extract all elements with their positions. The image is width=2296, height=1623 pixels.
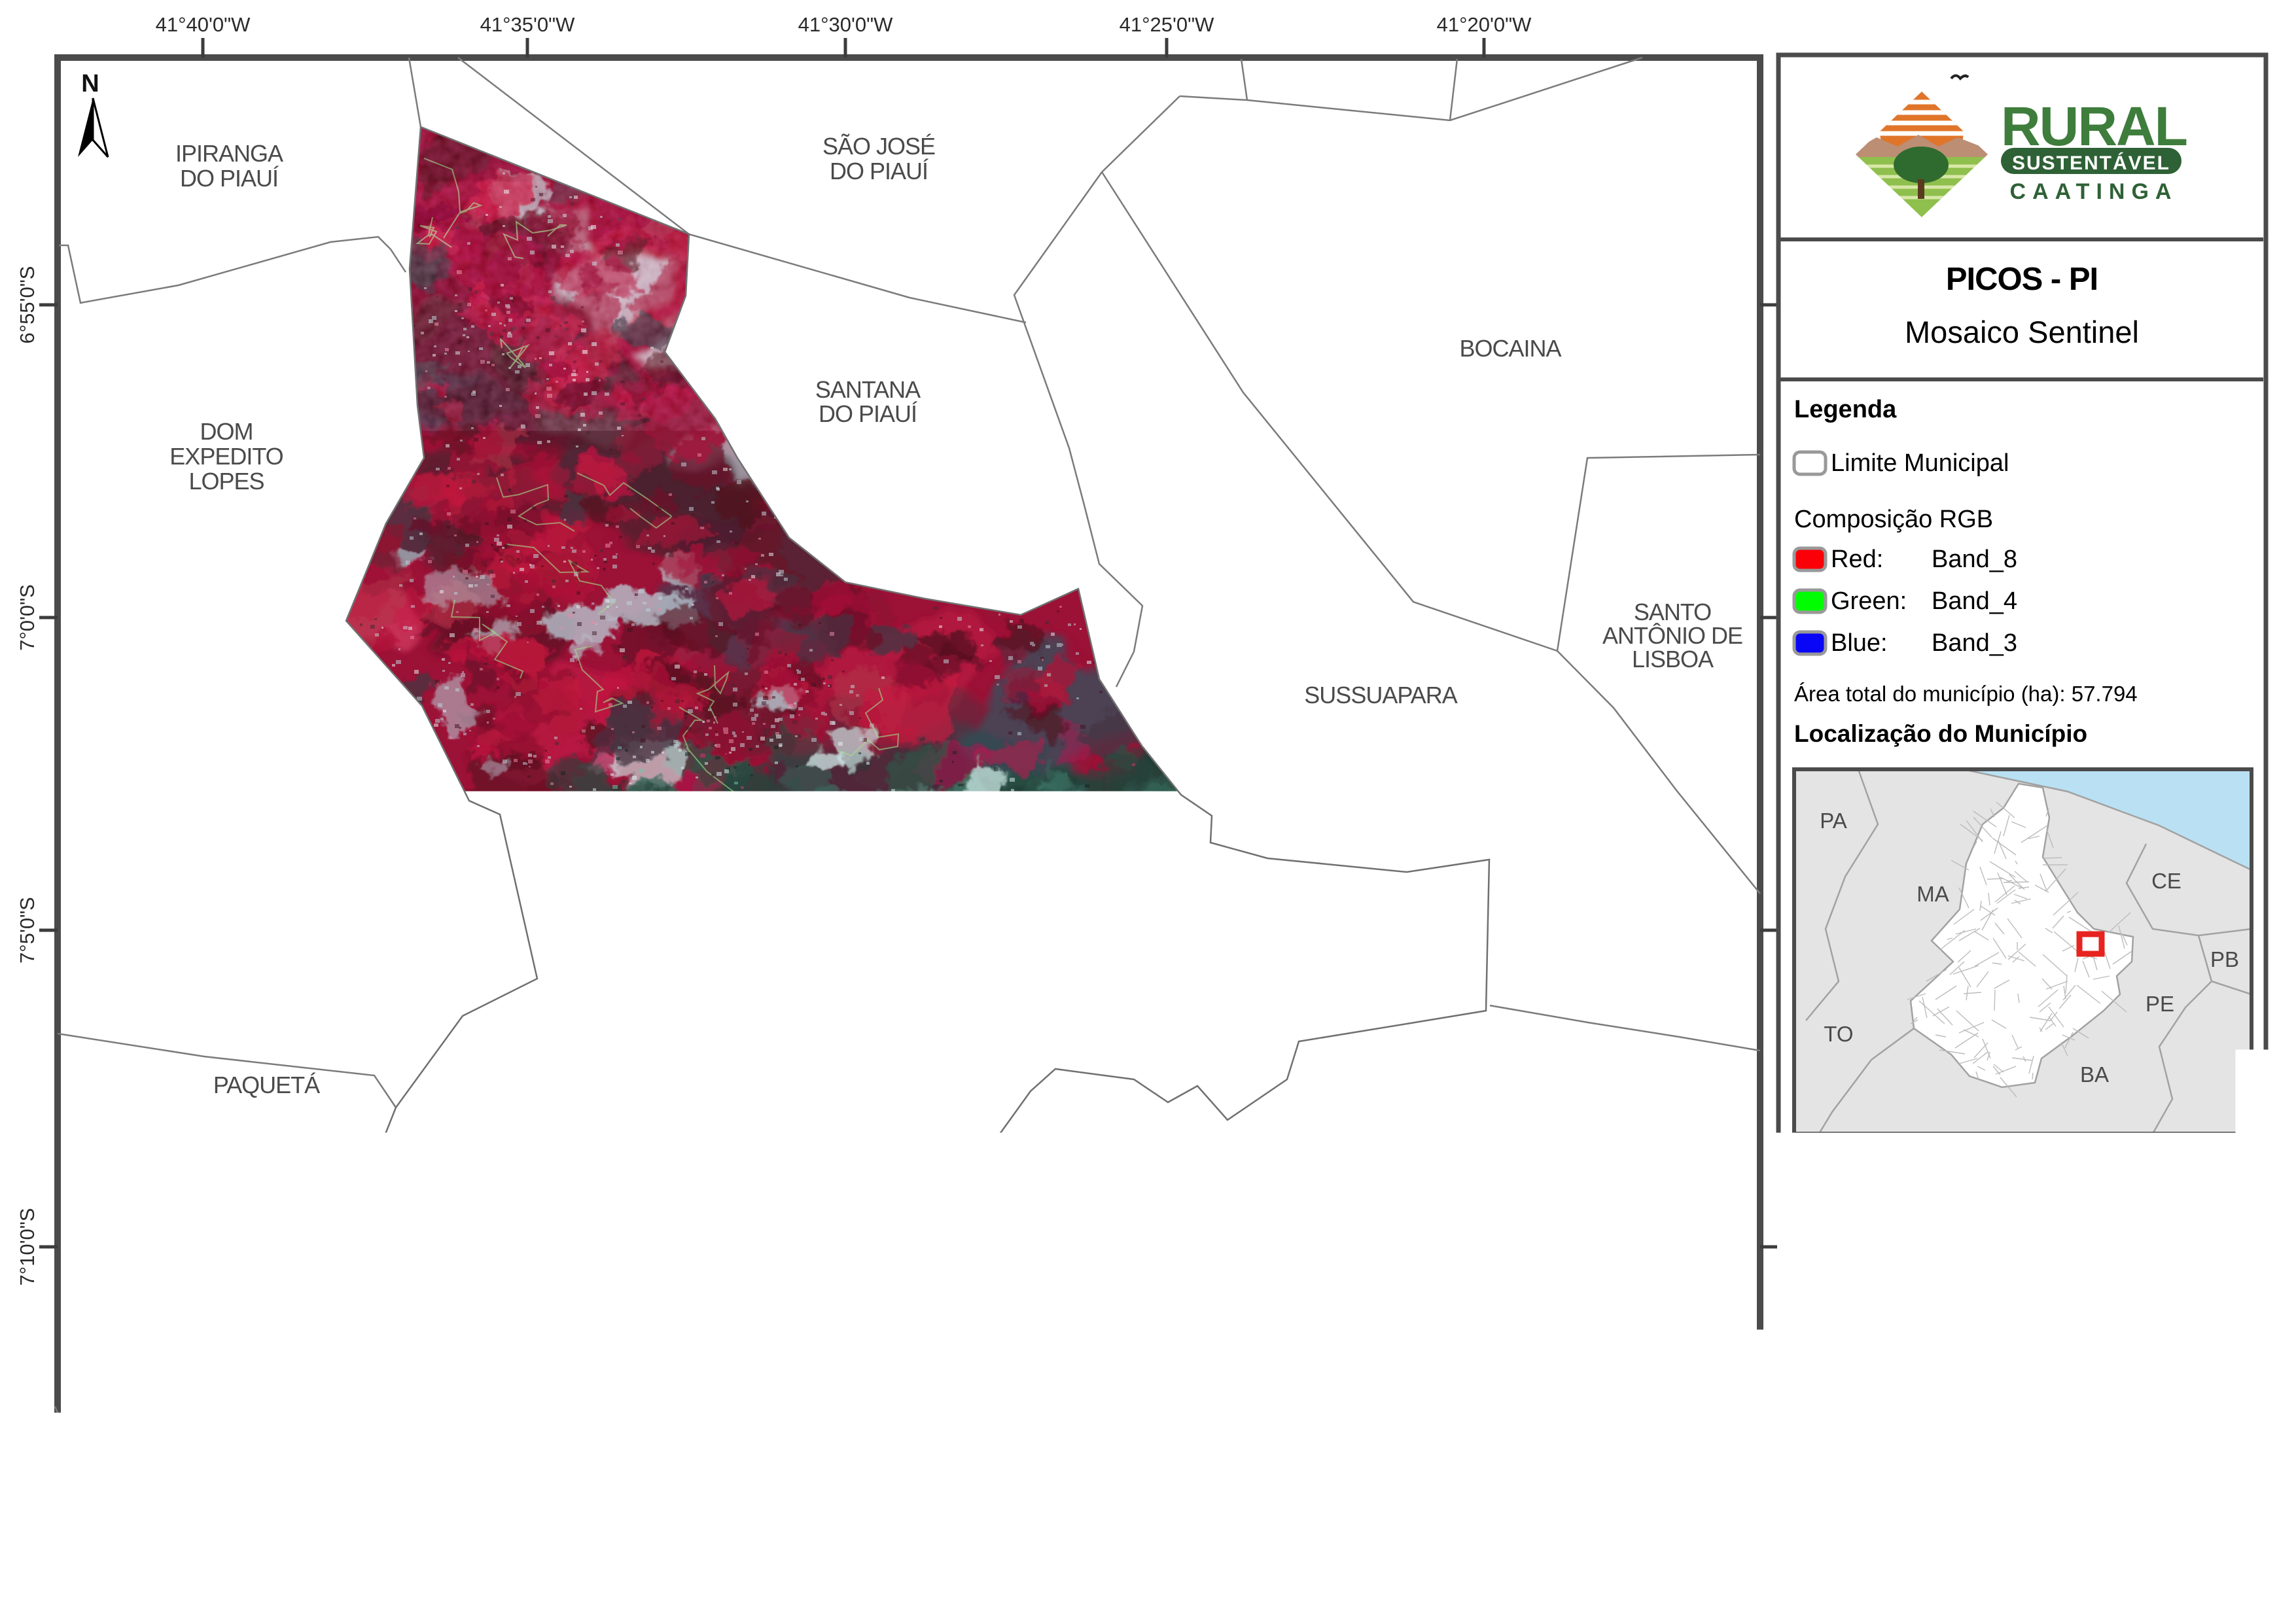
- svg-text:TO: TO: [1824, 1022, 1853, 1046]
- svg-text:BRITAIN & NORTHERN IRELAND: BRITAIN & NORTHERN IRELAND: [2006, 1452, 2098, 1459]
- svg-text:Sistema de Coordenadas Geográf: Sistema de Coordenadas Geográficas: [1794, 1209, 2216, 1236]
- svg-text:41°40'0"W: 41°40'0"W: [156, 13, 251, 36]
- svg-text:PB: PB: [2210, 947, 2239, 971]
- svg-text:LOPES: LOPES: [188, 468, 264, 495]
- svg-text:41°30'0"W: 41°30'0"W: [798, 13, 894, 36]
- svg-text:EXPEDITO: EXPEDITO: [169, 443, 283, 470]
- svg-text:41°25'0"W: 41°25'0"W: [1120, 1586, 1215, 1609]
- svg-text:AROEIRAS: AROEIRAS: [711, 1414, 827, 1440]
- svg-text:Imagens Sentinel 2 - Ano base: Imagens Sentinel 2 - Ano base 2019: [1794, 1179, 2195, 1207]
- svg-text:SUSSUAPARA: SUSSUAPARA: [1304, 682, 1457, 708]
- svg-text:CE: CE: [2151, 869, 2181, 893]
- svg-text:41°25'0"W: 41°25'0"W: [1120, 13, 1215, 36]
- svg-text:IPIRANGA: IPIRANGA: [175, 140, 283, 167]
- svg-text:SÃO JOSÉ: SÃO JOSÉ: [822, 133, 935, 160]
- svg-text:LISBOA: LISBOA: [1632, 646, 1714, 672]
- svg-text:Band_3: Band_3: [1932, 629, 2017, 657]
- svg-text:PAQUETÁ: PAQUETÁ: [213, 1072, 320, 1098]
- svg-text:41°30'0"W: 41°30'0"W: [798, 1586, 894, 1609]
- svg-text:ANTÔNIO DE: ANTÔNIO DE: [1602, 622, 1742, 649]
- svg-text:PA: PA: [1820, 809, 1847, 833]
- svg-text:BA: BA: [2080, 1062, 2109, 1087]
- svg-text:Band_4: Band_4: [1932, 587, 2017, 615]
- svg-text:DO ITAIM: DO ITAIM: [720, 1439, 817, 1465]
- svg-text:Band_8: Band_8: [1932, 546, 2017, 573]
- svg-text:Datum SIRGAS 2000: Datum SIRGAS 2000: [1794, 1238, 2030, 1265]
- svg-text:PICOS - PI: PICOS - PI: [1946, 262, 2098, 297]
- svg-text:BRASIL: BRASIL: [2075, 1506, 2187, 1540]
- svg-text:fbds: fbds: [1997, 1323, 2099, 1378]
- svg-text:Red:: Red:: [1831, 546, 1883, 573]
- svg-text:Limite Municipal: Limite Municipal: [1831, 449, 2009, 477]
- svg-text:DO PIAUÍ: DO PIAUÍ: [819, 400, 917, 427]
- svg-text:41°35'0"W: 41°35'0"W: [480, 1586, 576, 1609]
- svg-text:Legenda: Legenda: [1794, 396, 1897, 423]
- svg-text:12 km: 12 km: [482, 1495, 553, 1524]
- svg-text:for: for: [2086, 1427, 2109, 1449]
- svg-text:RURAL: RURAL: [2001, 96, 2187, 157]
- svg-text:Banco Interamericano: Banco Interamericano: [1874, 1453, 1996, 1467]
- svg-text:Composição RGB: Composição RGB: [1794, 506, 1993, 533]
- svg-text:7°0'0"S: 7°0'0"S: [16, 584, 39, 651]
- svg-text:Mosaico Sentinel: Mosaico Sentinel: [1905, 315, 2139, 349]
- svg-text:41°20'0"W: 41°20'0"W: [1437, 13, 1532, 36]
- svg-text:CAATINGA: CAATINGA: [2010, 179, 2178, 204]
- svg-text:PE: PE: [2146, 992, 2174, 1016]
- svg-text:AGRICULTURA, PECUÁRIA: AGRICULTURA, PECUÁRIA: [1824, 1508, 1987, 1522]
- svg-text:7°10'0"S: 7°10'0"S: [16, 1208, 39, 1286]
- svg-text:6: 6: [281, 1495, 295, 1524]
- svg-text:0: 0: [75, 1495, 90, 1524]
- svg-text:DOM: DOM: [200, 418, 253, 445]
- svg-text:DO PIAUÍ: DO PIAUÍ: [180, 165, 279, 192]
- svg-text:41°40'0"W: 41°40'0"W: [156, 1586, 251, 1609]
- svg-text:SUSTENTÁVEL: SUSTENTÁVEL: [2012, 152, 2170, 174]
- svg-text:Área total do município (ha):: Área total do município (ha): 57.794: [1794, 682, 2138, 706]
- svg-text:SANTANA: SANTANA: [815, 376, 921, 403]
- svg-text:GREAT: GREAT: [2009, 1426, 2078, 1449]
- svg-text:7°5'0"S: 7°5'0"S: [16, 897, 39, 964]
- svg-text:41°20'0"W: 41°20'0"W: [1437, 1586, 1532, 1609]
- svg-text:41°35'0"W: 41°35'0"W: [480, 13, 576, 36]
- svg-text:Fonte de Dados: Fonte de Dados: [1794, 1146, 2000, 1177]
- svg-text:Blue:: Blue:: [1831, 629, 1888, 657]
- svg-text:BOCAINA: BOCAINA: [1459, 335, 1561, 362]
- svg-text:Green:: Green:: [1831, 587, 1907, 615]
- svg-text:BID: BID: [1874, 1389, 1968, 1461]
- svg-text:de Desenvolvimento: de Desenvolvimento: [1874, 1466, 1987, 1480]
- svg-text:6°55'0"S: 6°55'0"S: [16, 266, 39, 344]
- svg-text:PARTNERSHIP: PARTNERSHIP: [2112, 1426, 2254, 1450]
- svg-text:MA: MA: [1916, 882, 1949, 906]
- svg-text:SANTO: SANTO: [1634, 599, 1711, 625]
- svg-text:DO PIAUÍ: DO PIAUÍ: [830, 158, 928, 184]
- svg-text:N: N: [81, 70, 99, 97]
- svg-text:E ABASTECIMENTO: E ABASTECIMENTO: [1867, 1525, 1987, 1539]
- svg-text:GEMINIANO: GEMINIANO: [1328, 1265, 1457, 1292]
- svg-text:GOVERNO FEDERAL: GOVERNO FEDERAL: [2078, 1537, 2224, 1547]
- svg-text:Localização do Município: Localização do Município: [1794, 720, 2087, 747]
- svg-text:3: 3: [181, 1495, 195, 1524]
- svg-text:MINISTÉRIO DA: MINISTÉRIO DA: [1908, 1493, 1987, 1505]
